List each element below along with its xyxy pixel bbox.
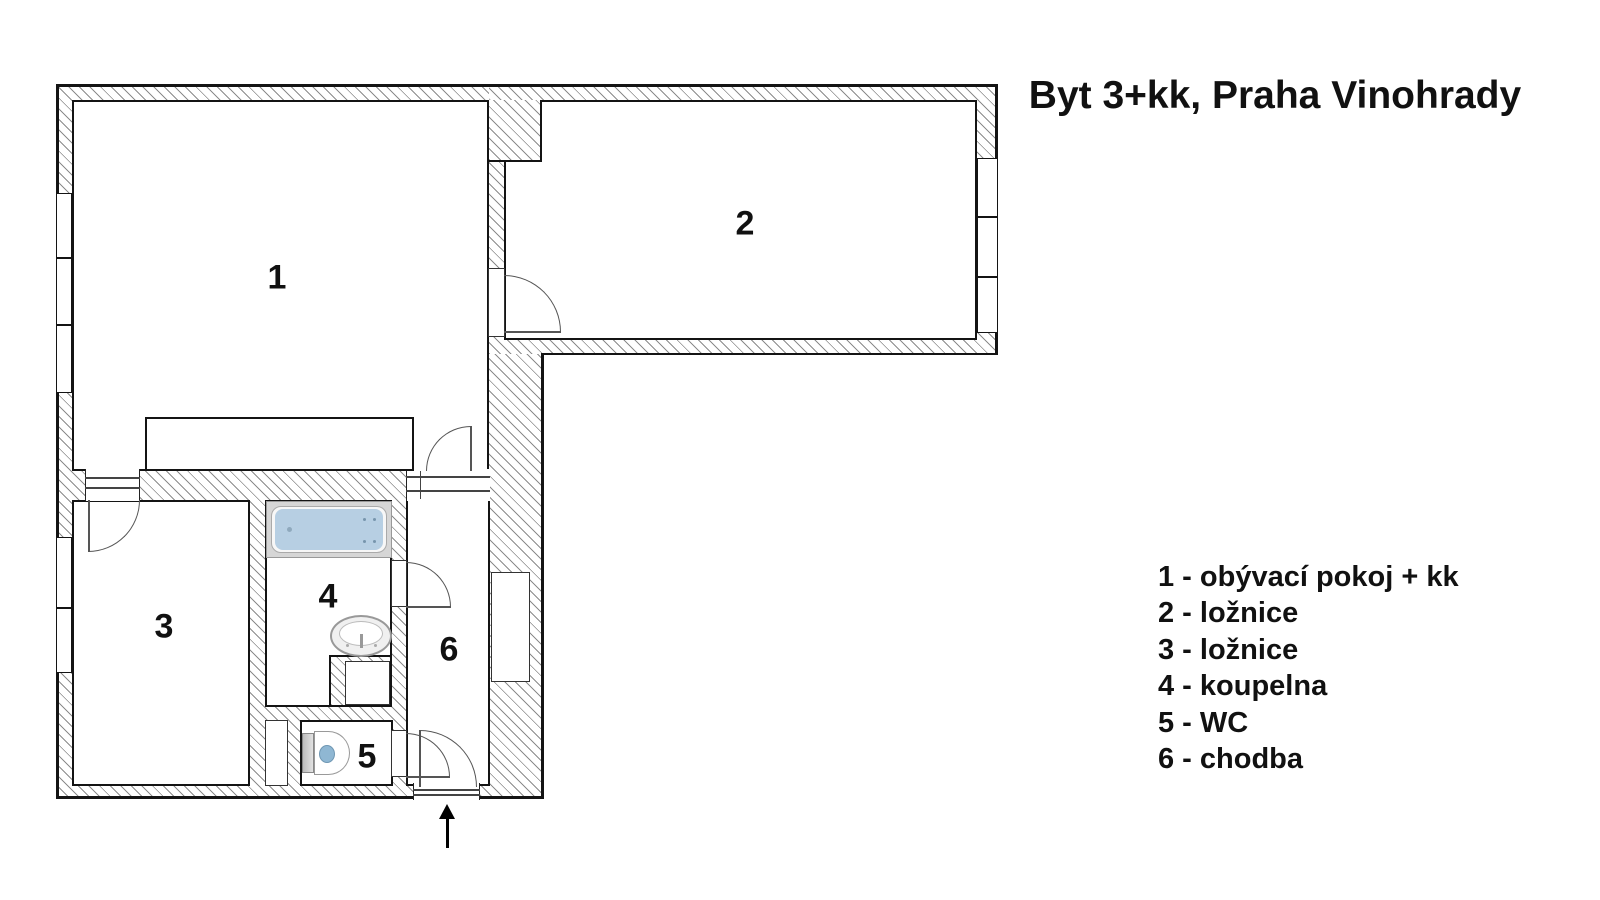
washbasin-faucet <box>360 634 363 648</box>
room-label-5: 5 <box>358 738 377 777</box>
room-2-doorway <box>488 268 505 337</box>
legend-item: 2 - ložnice <box>1158 595 1459 631</box>
room-2-corner-notch <box>489 100 542 162</box>
washbasin <box>330 615 392 657</box>
room-3-window-divider <box>56 607 72 609</box>
outer-wall-top <box>56 84 998 87</box>
hallway-niche <box>491 572 530 682</box>
kitchen-counter <box>145 417 414 471</box>
room-1-window-divider <box>56 324 72 326</box>
room-1-window <box>56 193 72 393</box>
bathtub-jet <box>373 540 376 543</box>
room-1-door-sill-edge <box>420 471 422 499</box>
entrance-sill <box>413 789 480 791</box>
room-label-3: 3 <box>155 608 174 647</box>
bathtub-jet <box>363 518 366 521</box>
floor-plan-page: 1 2 3 4 5 6 Byt 3+kk, Praha Vinohrady 1 … <box>0 0 1600 900</box>
entrance-arrow-shaft <box>446 817 449 848</box>
washbasin-tap-dot <box>346 644 349 647</box>
legend-item: 5 - WC <box>1158 705 1459 741</box>
toilet-tank <box>302 733 314 773</box>
bathtub <box>266 501 392 558</box>
bathtub-jet <box>373 518 376 521</box>
room-2-window-divider <box>977 216 998 218</box>
bathtub-jet <box>363 540 366 543</box>
wc-doorway <box>391 730 407 777</box>
room-3-door-sill <box>85 487 140 489</box>
room-2-window <box>977 158 998 333</box>
bathtub-drain <box>287 527 292 532</box>
bathroom-doorway <box>391 560 407 607</box>
utility-shaft <box>345 661 390 705</box>
outer-wall-left <box>56 84 59 798</box>
entrance-sill <box>413 794 480 796</box>
room-label-4: 4 <box>319 578 338 617</box>
room-2-window-divider <box>977 276 998 278</box>
room-3-window <box>56 537 72 673</box>
outer-wall-wing-bottom <box>541 353 998 356</box>
legend-item: 3 - ložnice <box>1158 632 1459 668</box>
washbasin-tap-dot <box>374 644 377 647</box>
outer-wall-right-lower <box>541 353 544 799</box>
page-title: Byt 3+kk, Praha Vinohrady <box>1020 74 1530 118</box>
legend: 1 - obývací pokoj + kk 2 - ložnice 3 - l… <box>1158 559 1459 777</box>
toilet-seat <box>319 745 335 763</box>
legend-item: 6 - chodba <box>1158 741 1459 777</box>
legend-item: 1 - obývací pokoj + kk <box>1158 559 1459 595</box>
room-label-1: 1 <box>268 259 287 298</box>
room-label-2: 2 <box>736 205 755 244</box>
wc-side-closet <box>265 720 288 786</box>
legend-item: 4 - koupelna <box>1158 668 1459 704</box>
room-1-window-divider <box>56 257 72 259</box>
room-3-door-sill <box>85 477 140 479</box>
room-label-6: 6 <box>440 631 459 670</box>
room-3-doorway <box>85 469 140 501</box>
